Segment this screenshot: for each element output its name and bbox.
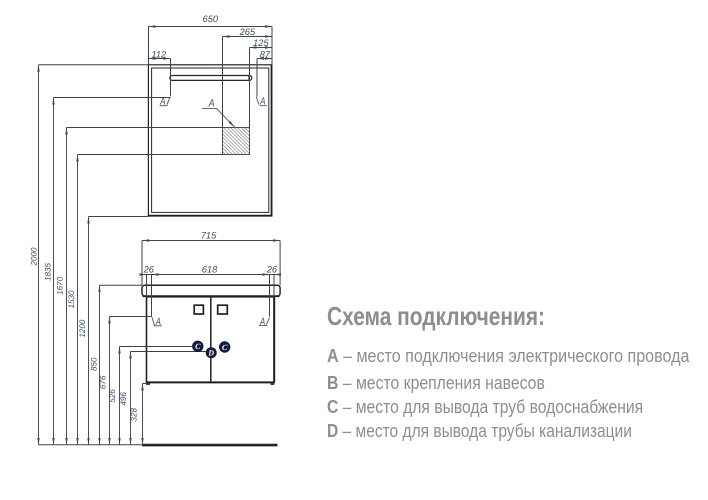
svg-text:850: 850: [89, 357, 98, 371]
svg-text:1670: 1670: [56, 276, 65, 295]
svg-text:1835: 1835: [44, 263, 53, 282]
svg-text:C: C: [195, 342, 201, 351]
svg-text:715: 715: [201, 231, 217, 241]
svg-text:526: 526: [108, 389, 117, 403]
svg-text:D: D: [207, 349, 214, 358]
svg-text:125: 125: [253, 38, 269, 48]
svg-text:1200: 1200: [78, 319, 87, 338]
svg-text:618: 618: [202, 264, 218, 274]
svg-text:265: 265: [239, 27, 256, 37]
svg-text:C: C: [222, 343, 228, 352]
svg-text:87: 87: [260, 49, 271, 59]
svg-text:A: A: [208, 97, 215, 109]
svg-text:26: 26: [266, 264, 278, 274]
svg-text:496: 496: [119, 392, 128, 406]
svg-text:1530: 1530: [67, 290, 76, 309]
svg-text:676: 676: [98, 375, 107, 389]
svg-text:112: 112: [151, 49, 167, 59]
svg-text:650: 650: [203, 14, 219, 24]
svg-text:2000: 2000: [29, 247, 38, 267]
svg-text:328: 328: [129, 408, 138, 422]
svg-text:26: 26: [143, 264, 155, 274]
